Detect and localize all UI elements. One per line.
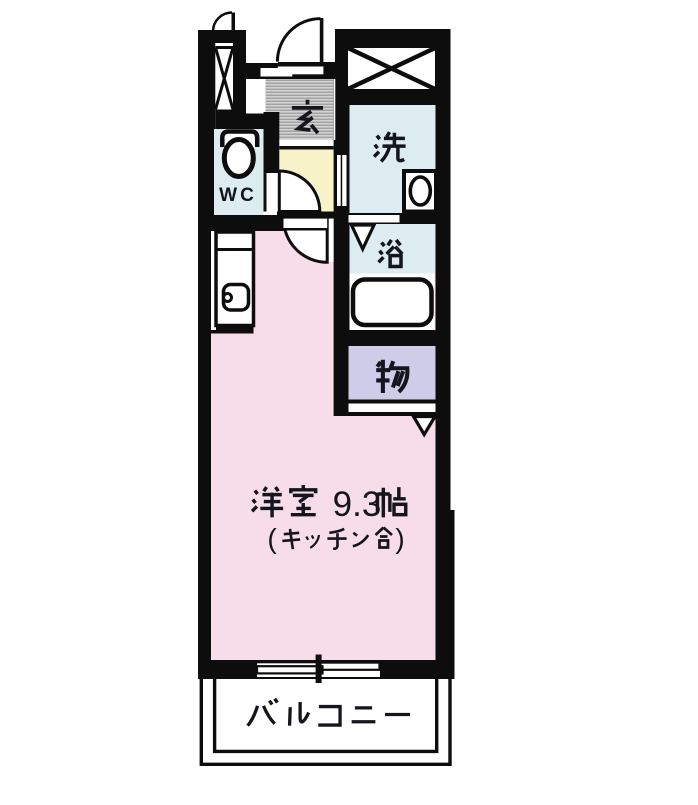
- svg-text:9.3: 9.3: [333, 485, 382, 524]
- svg-text:): ): [395, 523, 404, 554]
- svg-text:WC: WC: [219, 185, 257, 206]
- svg-text:(: (: [267, 523, 277, 554]
